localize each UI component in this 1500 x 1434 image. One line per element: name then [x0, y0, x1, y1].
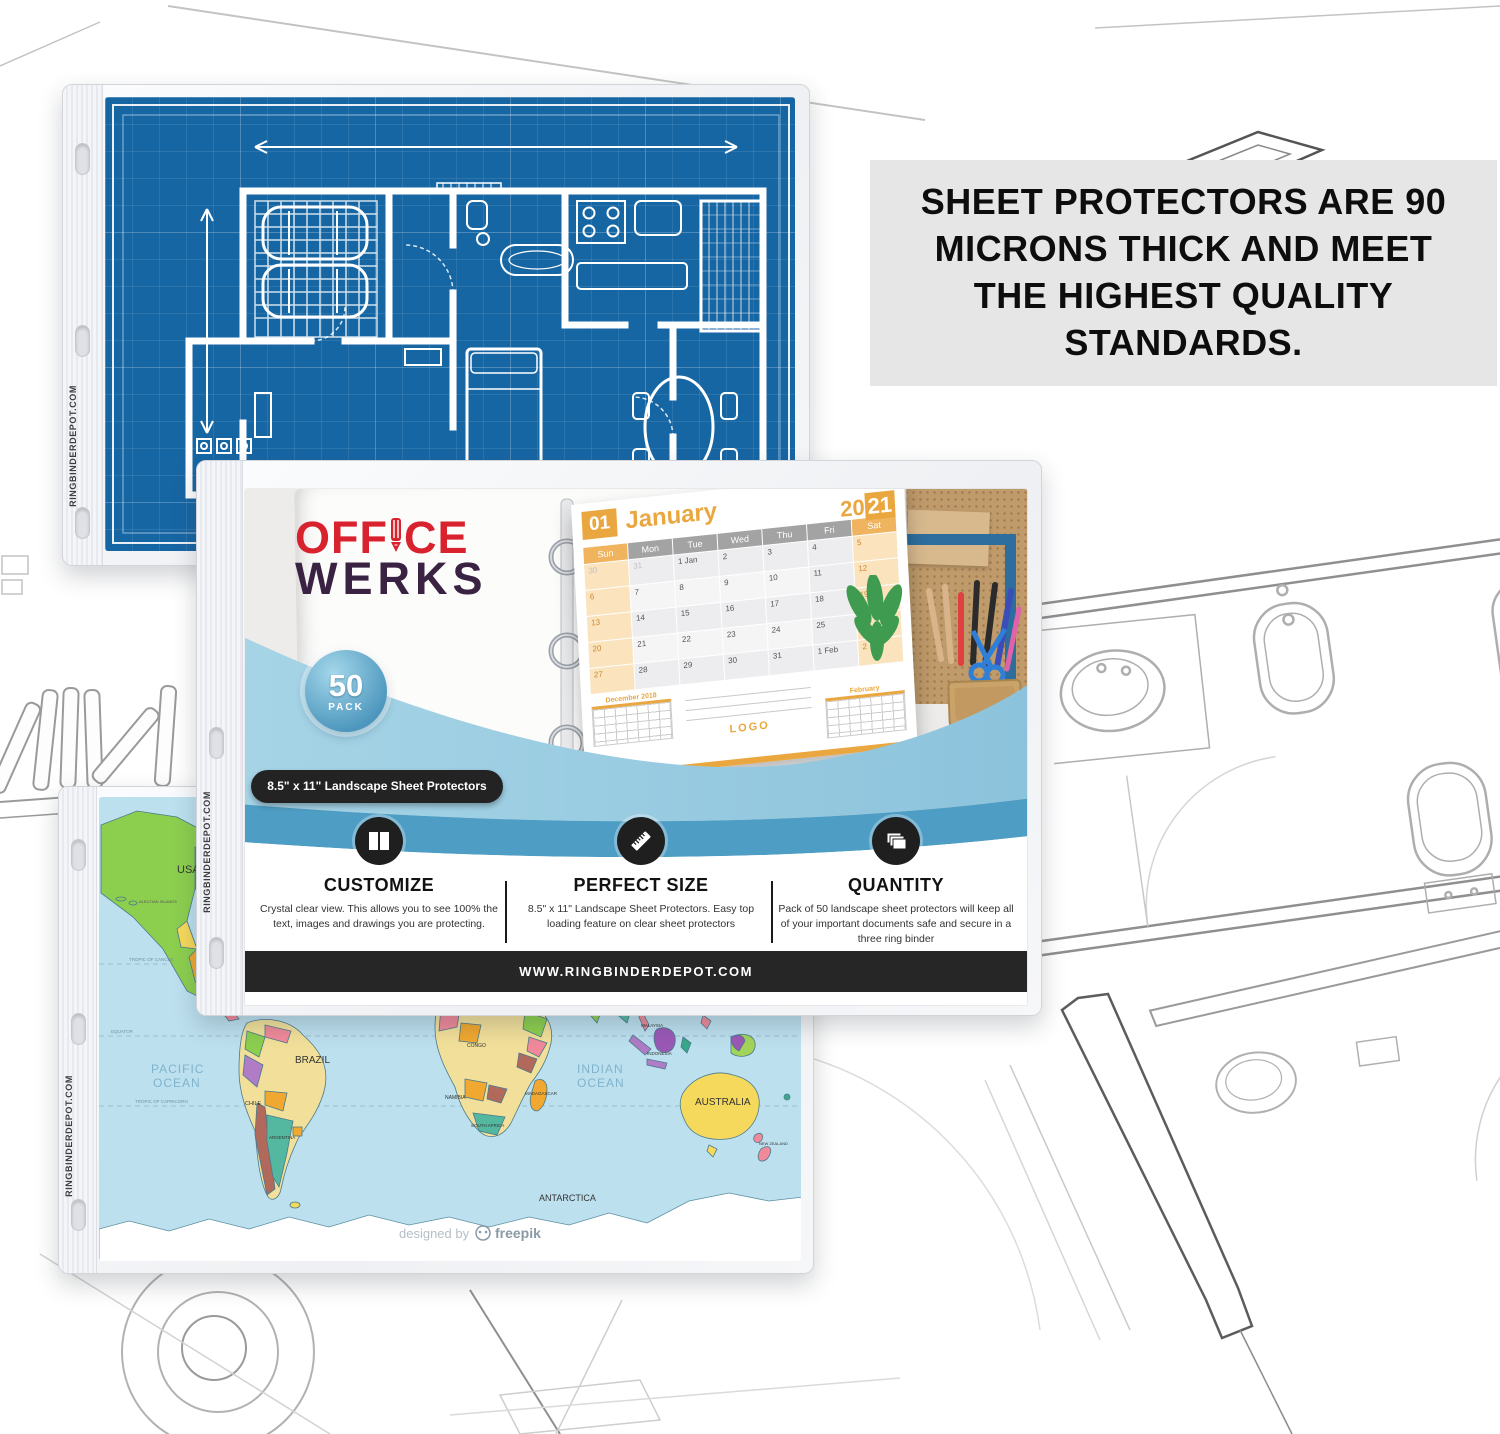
map-label-indian-2: OCEAN [577, 1076, 625, 1090]
pencil-icon [389, 517, 403, 553]
website-bar: WWW.RINGBINDERDEPOT.COM [245, 951, 1027, 992]
wall-drawing [780, 994, 1292, 1434]
calendar-cell: 15 [676, 603, 721, 633]
bathroom-plan-drawing [992, 527, 1500, 981]
product-image: SHEET PROTECTORS ARE 90 MICRONS THICK AN… [0, 0, 1500, 1434]
sheet-protector-product-card: RINGBINDERDEPOT.COM [196, 460, 1042, 1016]
punch-hole [75, 325, 90, 357]
map-label-new-zealand: NEW ZEALAND [759, 1141, 788, 1146]
calendar-cell: 14 [632, 608, 677, 638]
brand-word-office: OFFCE [295, 517, 488, 558]
calendar-cell: 30 [584, 560, 629, 590]
calendar-cell: 31 [769, 646, 814, 676]
map-label-equator: EQUATOR [111, 1029, 134, 1034]
protector-edge-text: RINGBINDERDEPOT.COM [68, 385, 78, 507]
calendar-cell: 22 [678, 629, 723, 659]
calendar-cell: 4 [808, 537, 853, 567]
calendar-notes: LOGO [679, 675, 819, 740]
column-divider [771, 881, 773, 943]
map-label-indonesia: INDONESIA [647, 1051, 672, 1056]
map-label-south-africa: SOUTH AFRICA [471, 1123, 504, 1128]
feature-title: QUANTITY [773, 875, 1019, 896]
feature-customize: CUSTOMIZE Crystal clear view. This allow… [259, 817, 499, 932]
map-label-congo: CONGO [467, 1043, 486, 1049]
punch-hole [75, 507, 90, 539]
size-pill: 8.5" x 11" Landscape Sheet Protectors [251, 770, 503, 803]
calendar-month-number: 01 [581, 508, 617, 540]
product-card: 01 January 2021 SunMonTueWedThuFriSat 30… [245, 489, 1027, 1005]
protector-edge: RINGBINDERDEPOT.COM [59, 787, 97, 1273]
info-box: SHEET PROTECTORS ARE 90 MICRONS THICK AN… [870, 160, 1497, 386]
calendar-cell: 20 [588, 638, 633, 668]
brand-word-werks: WERKS [295, 558, 488, 599]
map-label-pacific-2: OCEAN [153, 1076, 201, 1090]
calendar-cell: 13 [587, 612, 632, 642]
calendar-month-name: January [625, 498, 718, 535]
calendar-cell: 28 [634, 660, 679, 690]
feature-description: Crystal clear view. This allows you to s… [259, 902, 499, 932]
protector-edge-text: RINGBINDERDEPOT.COM [202, 791, 212, 913]
calendar-cell: 17 [766, 594, 811, 624]
punch-hole [75, 143, 90, 175]
protector-edge: RINGBINDERDEPOT.COM [63, 85, 103, 565]
calendar-cell: 3 [763, 542, 808, 572]
calendar-cell: 9 [720, 572, 765, 602]
punch-hole [209, 727, 224, 759]
calendar-cell: 27 [590, 664, 635, 694]
protector-edge: RINGBINDERDEPOT.COM [197, 461, 243, 1015]
calendar-cell: 29 [679, 655, 724, 685]
calendar-cell: 2 [718, 546, 763, 576]
map-label-australia: AUSTRALIA [695, 1097, 751, 1108]
mini-calendar-next: February [825, 682, 907, 738]
map-label-tropic-capricorn: TROPIC OF CAPRICORN [135, 1099, 188, 1104]
pack-count-badge: 50 PACK [305, 650, 387, 732]
map-label-chile: CHILE [245, 1101, 262, 1107]
wooden-cup [948, 680, 1021, 726]
map-label-madagascar: MADAGASCAR [525, 1091, 558, 1096]
calendar-cell: 30 [724, 650, 769, 680]
feature-quantity: QUANTITY Pack of 50 landscape sheet prot… [773, 817, 1019, 948]
punch-hole [71, 1199, 86, 1231]
feature-description: 8.5" x 11" Landscape Sheet Protectors. E… [521, 902, 761, 932]
pencil-cup [921, 569, 1027, 729]
map-label-malaysia: MALAYSIA [641, 1023, 663, 1028]
calendar-cell: 10 [765, 568, 810, 598]
plant-leaves [841, 575, 911, 675]
map-label-antarctica: ANTARCTICA [539, 1193, 596, 1203]
feature-title: PERFECT SIZE [521, 875, 761, 896]
calendar-cell: 8 [675, 577, 720, 607]
calendar-cell: 21 [633, 634, 678, 664]
brand-logo: OFFCE WERKS [295, 517, 488, 600]
pack-count-label: PACK [328, 702, 364, 713]
stack-icon [872, 817, 920, 865]
calendar-cell: 31 [629, 556, 674, 586]
protector-edge-text: RINGBINDERDEPOT.COM [64, 1075, 74, 1197]
map-label-pacific-1: PACIFIC [151, 1062, 204, 1076]
calendar-cell: 1 Jan [674, 551, 719, 581]
feature-title: CUSTOMIZE [259, 875, 499, 896]
map-label-argentina: ARGENTINA [269, 1135, 295, 1140]
map-label-indian-1: INDIAN [577, 1062, 624, 1076]
calendar-cell: 5 [853, 532, 898, 562]
panels-icon [355, 817, 403, 865]
info-box-text: SHEET PROTECTORS ARE 90 MICRONS THICK AN… [904, 179, 1463, 366]
mini-calendar-prev: December 2018 [591, 691, 673, 747]
calendar-cell: 6 [586, 586, 631, 616]
map-credit-text: designed by [399, 1226, 470, 1241]
calendar-cell: 24 [767, 620, 812, 650]
punch-hole [71, 839, 86, 871]
map-label-namibia: NAMIBIA [445, 1095, 466, 1101]
pack-count-number: 50 [329, 670, 363, 701]
punch-hole [71, 1013, 86, 1045]
map-label-aleutian: ALEUTIAN ISLANDS [139, 899, 177, 904]
calendar-cell: 23 [722, 624, 767, 654]
punch-hole [209, 937, 224, 969]
feature-description: Pack of 50 landscape sheet protectors wi… [773, 902, 1019, 948]
feature-perfect-size: PERFECT SIZE 8.5" x 11" Landscape Sheet … [521, 817, 761, 932]
column-circles-drawing [40, 1254, 900, 1434]
map-label-brazil: BRAZIL [295, 1055, 330, 1066]
map-credit-brand: freepik [495, 1225, 541, 1241]
map-label-tropic-cancer: TROPIC OF CANCER [129, 957, 175, 962]
ruler-icon [617, 817, 665, 865]
column-divider [505, 881, 507, 943]
calendar-cell: 16 [721, 598, 766, 628]
calendar-cell: 7 [630, 582, 675, 612]
